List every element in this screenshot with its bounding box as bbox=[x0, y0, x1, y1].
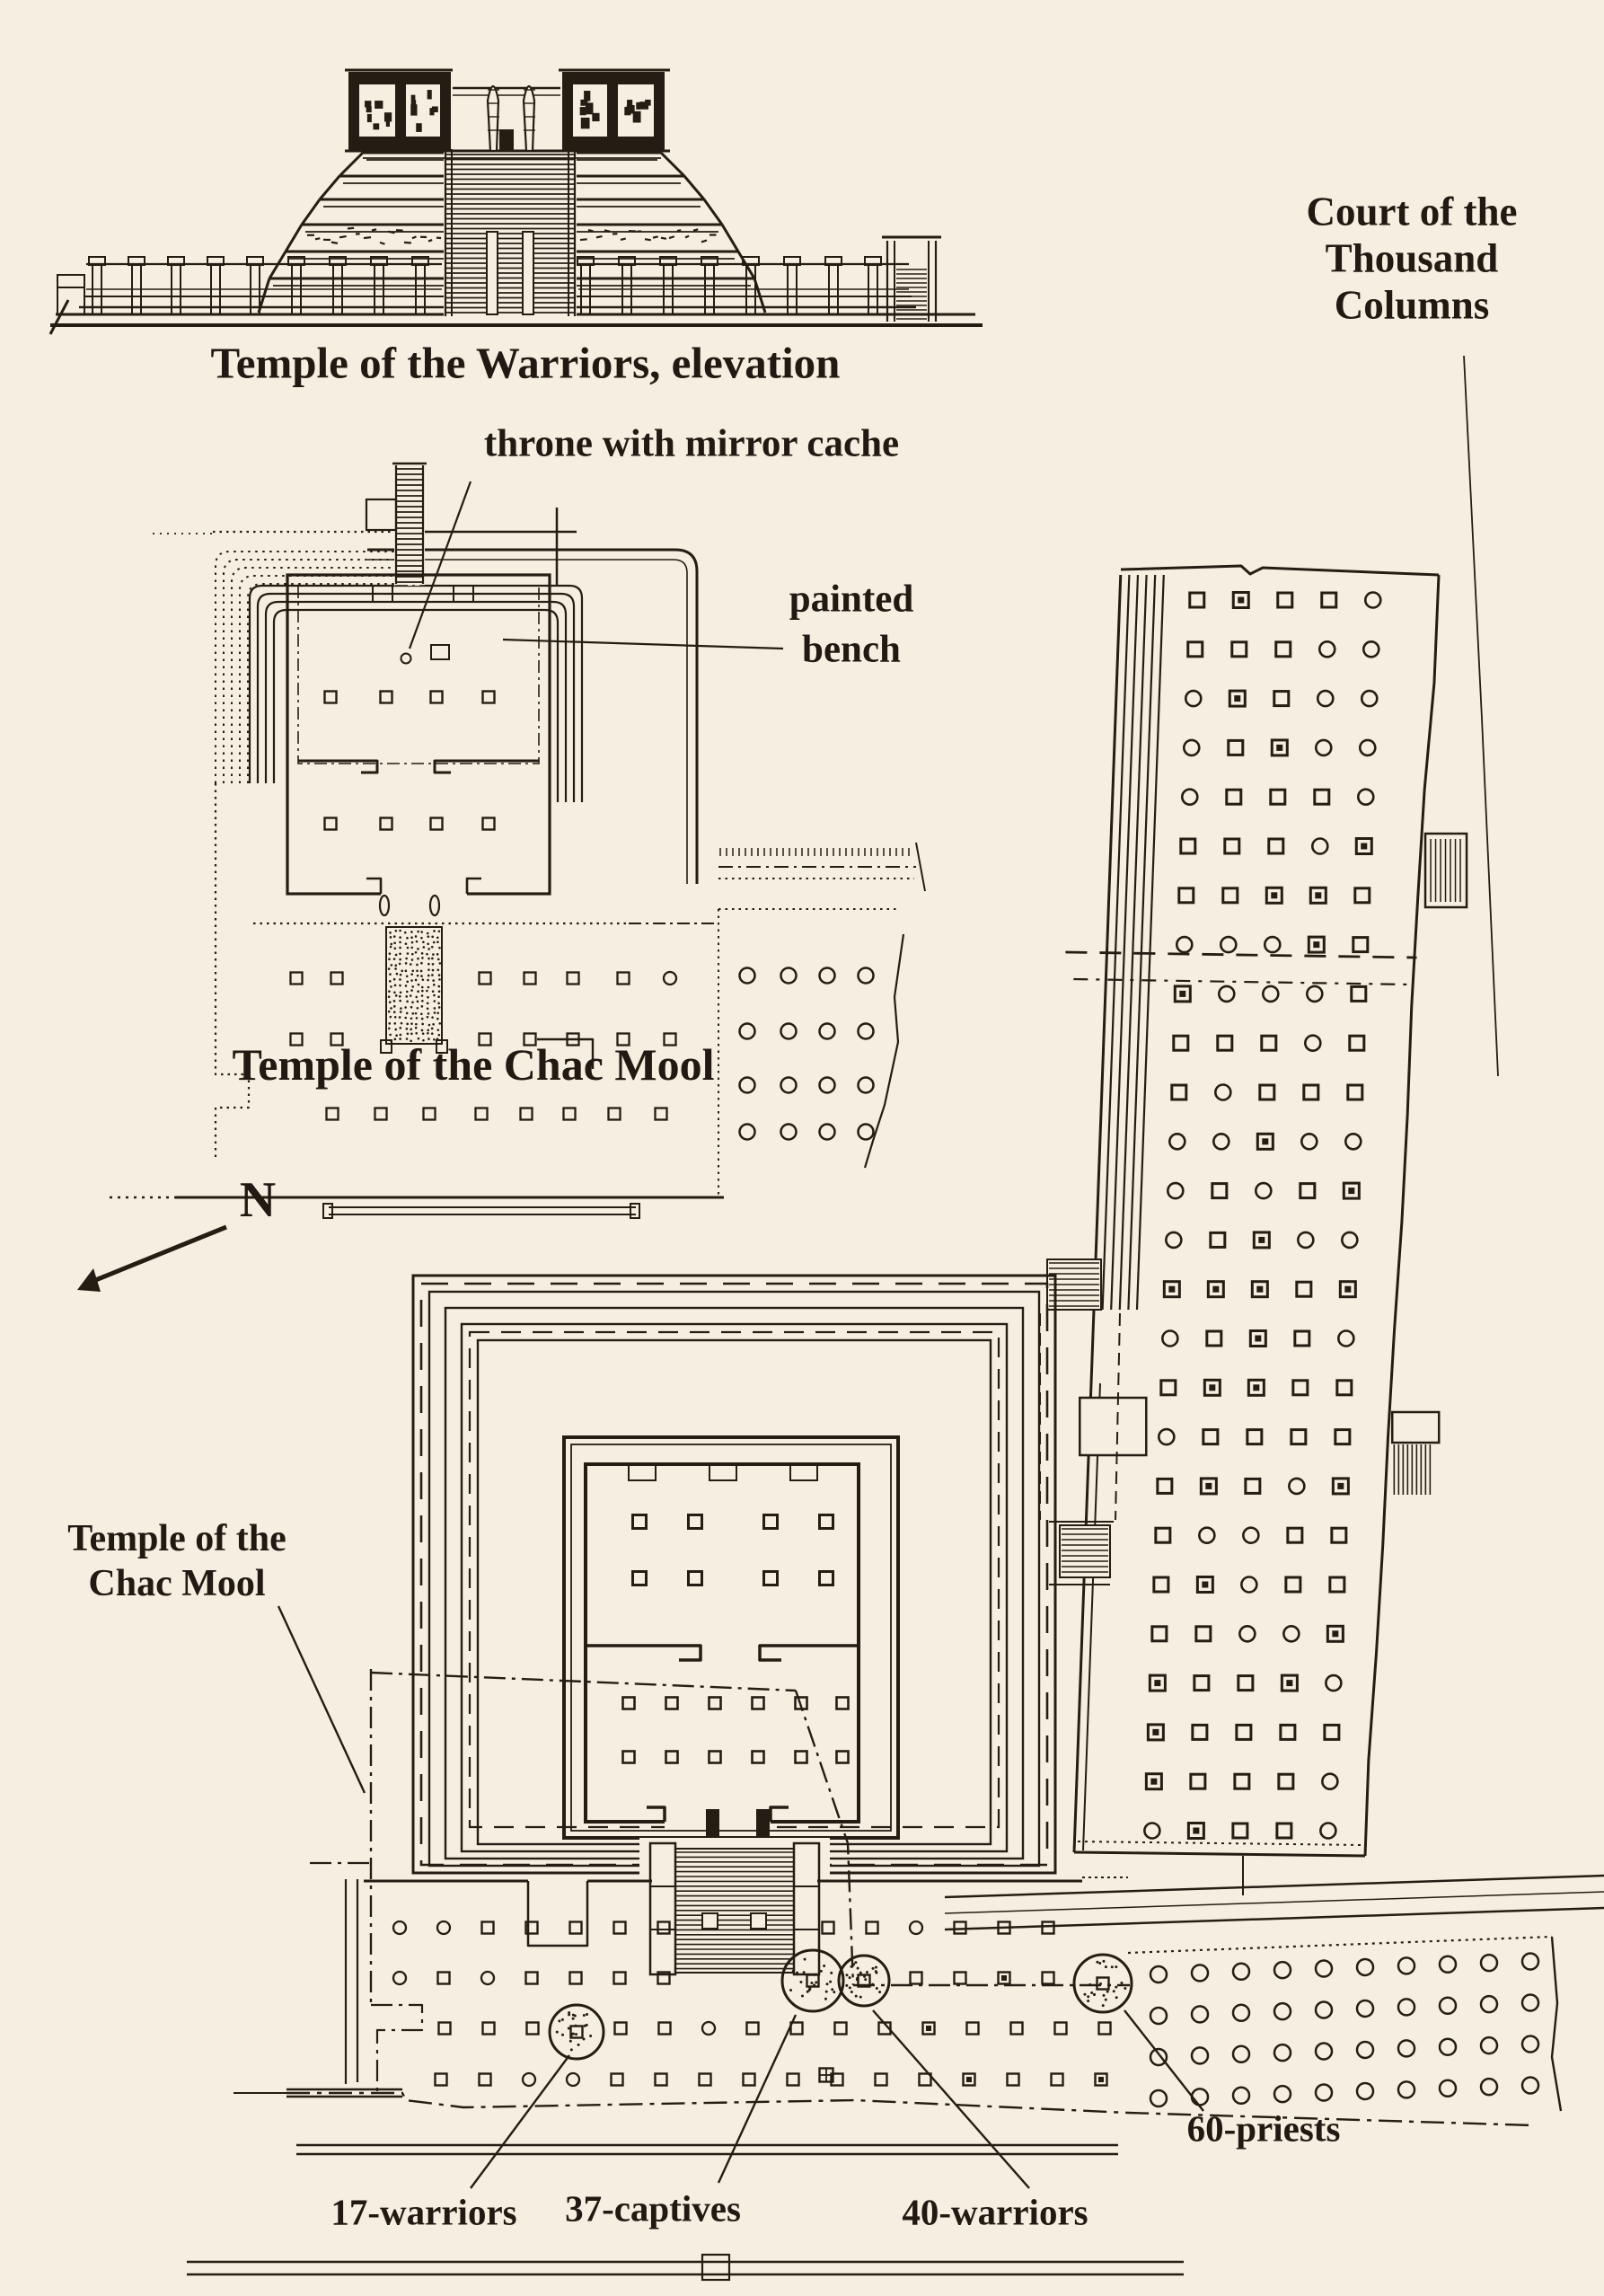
temple-of-warriors-plan-drawing bbox=[413, 1276, 1055, 1978]
north-label: N bbox=[240, 1175, 278, 1225]
temple-of-warriors-elevation-drawing bbox=[50, 70, 983, 334]
label-ghost-line2: Chac Mool bbox=[88, 1565, 265, 1603]
label-ghost-line1: Temple of the bbox=[67, 1520, 286, 1558]
label-court-line1: Court of the bbox=[1307, 192, 1518, 233]
label-painted: painted bbox=[789, 580, 914, 619]
label-60-priests: 60-priests bbox=[1187, 2111, 1341, 2148]
chac-mool-buried-outline bbox=[286, 1669, 1532, 2125]
temple-of-chac-mool-plan-drawing bbox=[110, 464, 925, 1218]
label-throne: throne with mirror cache bbox=[484, 425, 899, 464]
court-of-thousand-columns-drawing bbox=[1040, 566, 1467, 1895]
label-40-warriors: 40-warriors bbox=[902, 2194, 1088, 2231]
caption-chac-mool: Temple of the Chac Mool bbox=[233, 1042, 715, 1087]
caption-elevation: Temple of the Warriors, elevation bbox=[211, 341, 841, 385]
scanned-figure-page: Temple of the Warriors, elevation throne… bbox=[0, 0, 1604, 2296]
label-37-captives: 37-captives bbox=[565, 2191, 741, 2228]
label-court-line2: Thousand bbox=[1326, 239, 1499, 279]
label-bench: bench bbox=[802, 631, 901, 669]
east-colonnade-drawing bbox=[945, 1876, 1604, 2111]
label-17-warriors: 17-warriors bbox=[330, 2194, 516, 2231]
label-court-line3: Columns bbox=[1335, 286, 1490, 326]
